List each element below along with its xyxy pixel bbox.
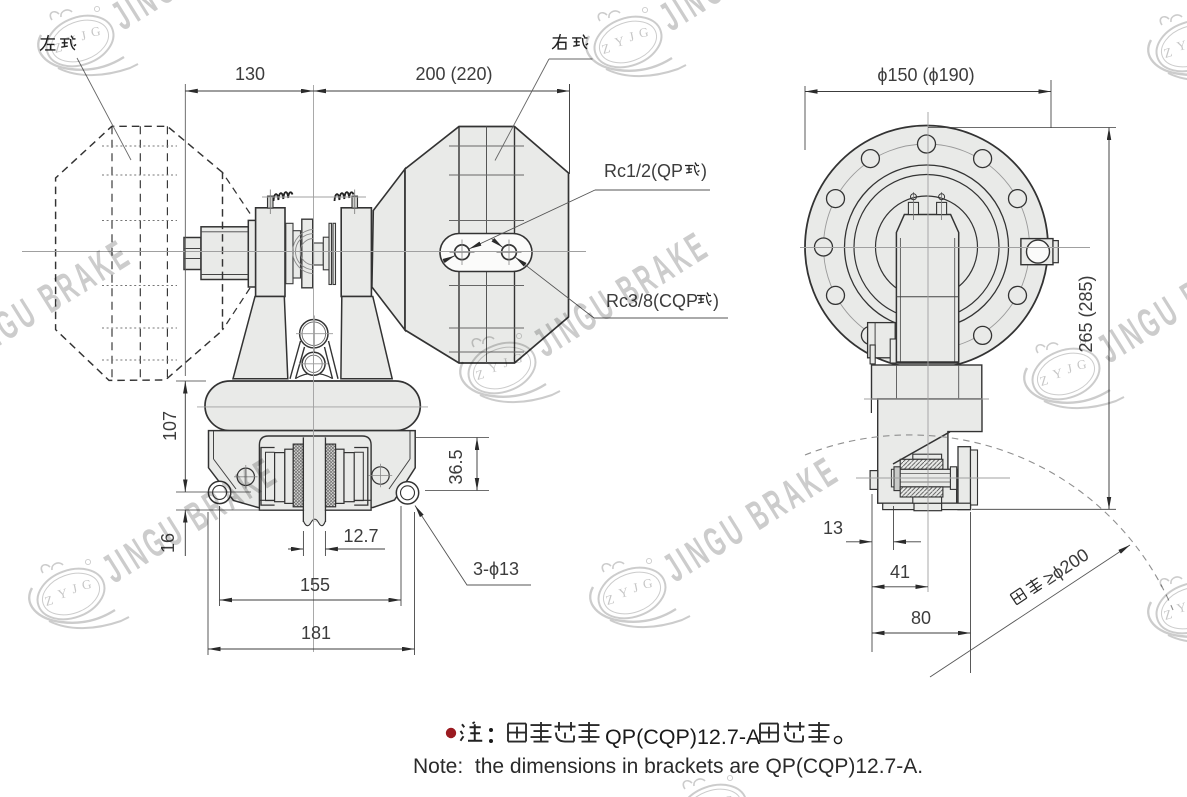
svg-text:107: 107 [160,411,180,441]
svg-text:13: 13 [823,518,843,538]
svg-text:80: 80 [911,608,931,628]
svg-text:3-ϕ13: 3-ϕ13 [473,559,519,579]
svg-text:Note: the dimensions in brack: Note: the dimensions in brackets are QP(… [413,755,923,778]
svg-text:12.7: 12.7 [343,526,378,546]
svg-text:Rc1/2(QP: Rc1/2(QP [604,161,683,181]
svg-text:155: 155 [300,575,330,595]
svg-text:41: 41 [890,562,910,582]
svg-text:QP(CQP)12.7-A: QP(CQP)12.7-A [605,725,761,749]
svg-text:181: 181 [301,623,331,643]
svg-text:200 (220): 200 (220) [415,64,492,84]
svg-text:): ) [701,161,707,181]
svg-text:36.5: 36.5 [446,449,466,484]
svg-text:265 (285): 265 (285) [1076,275,1096,352]
svg-text:ϕ150 (ϕ190): ϕ150 (ϕ190) [877,65,974,85]
svg-text:130: 130 [235,64,265,84]
svg-text:): ) [713,291,719,311]
